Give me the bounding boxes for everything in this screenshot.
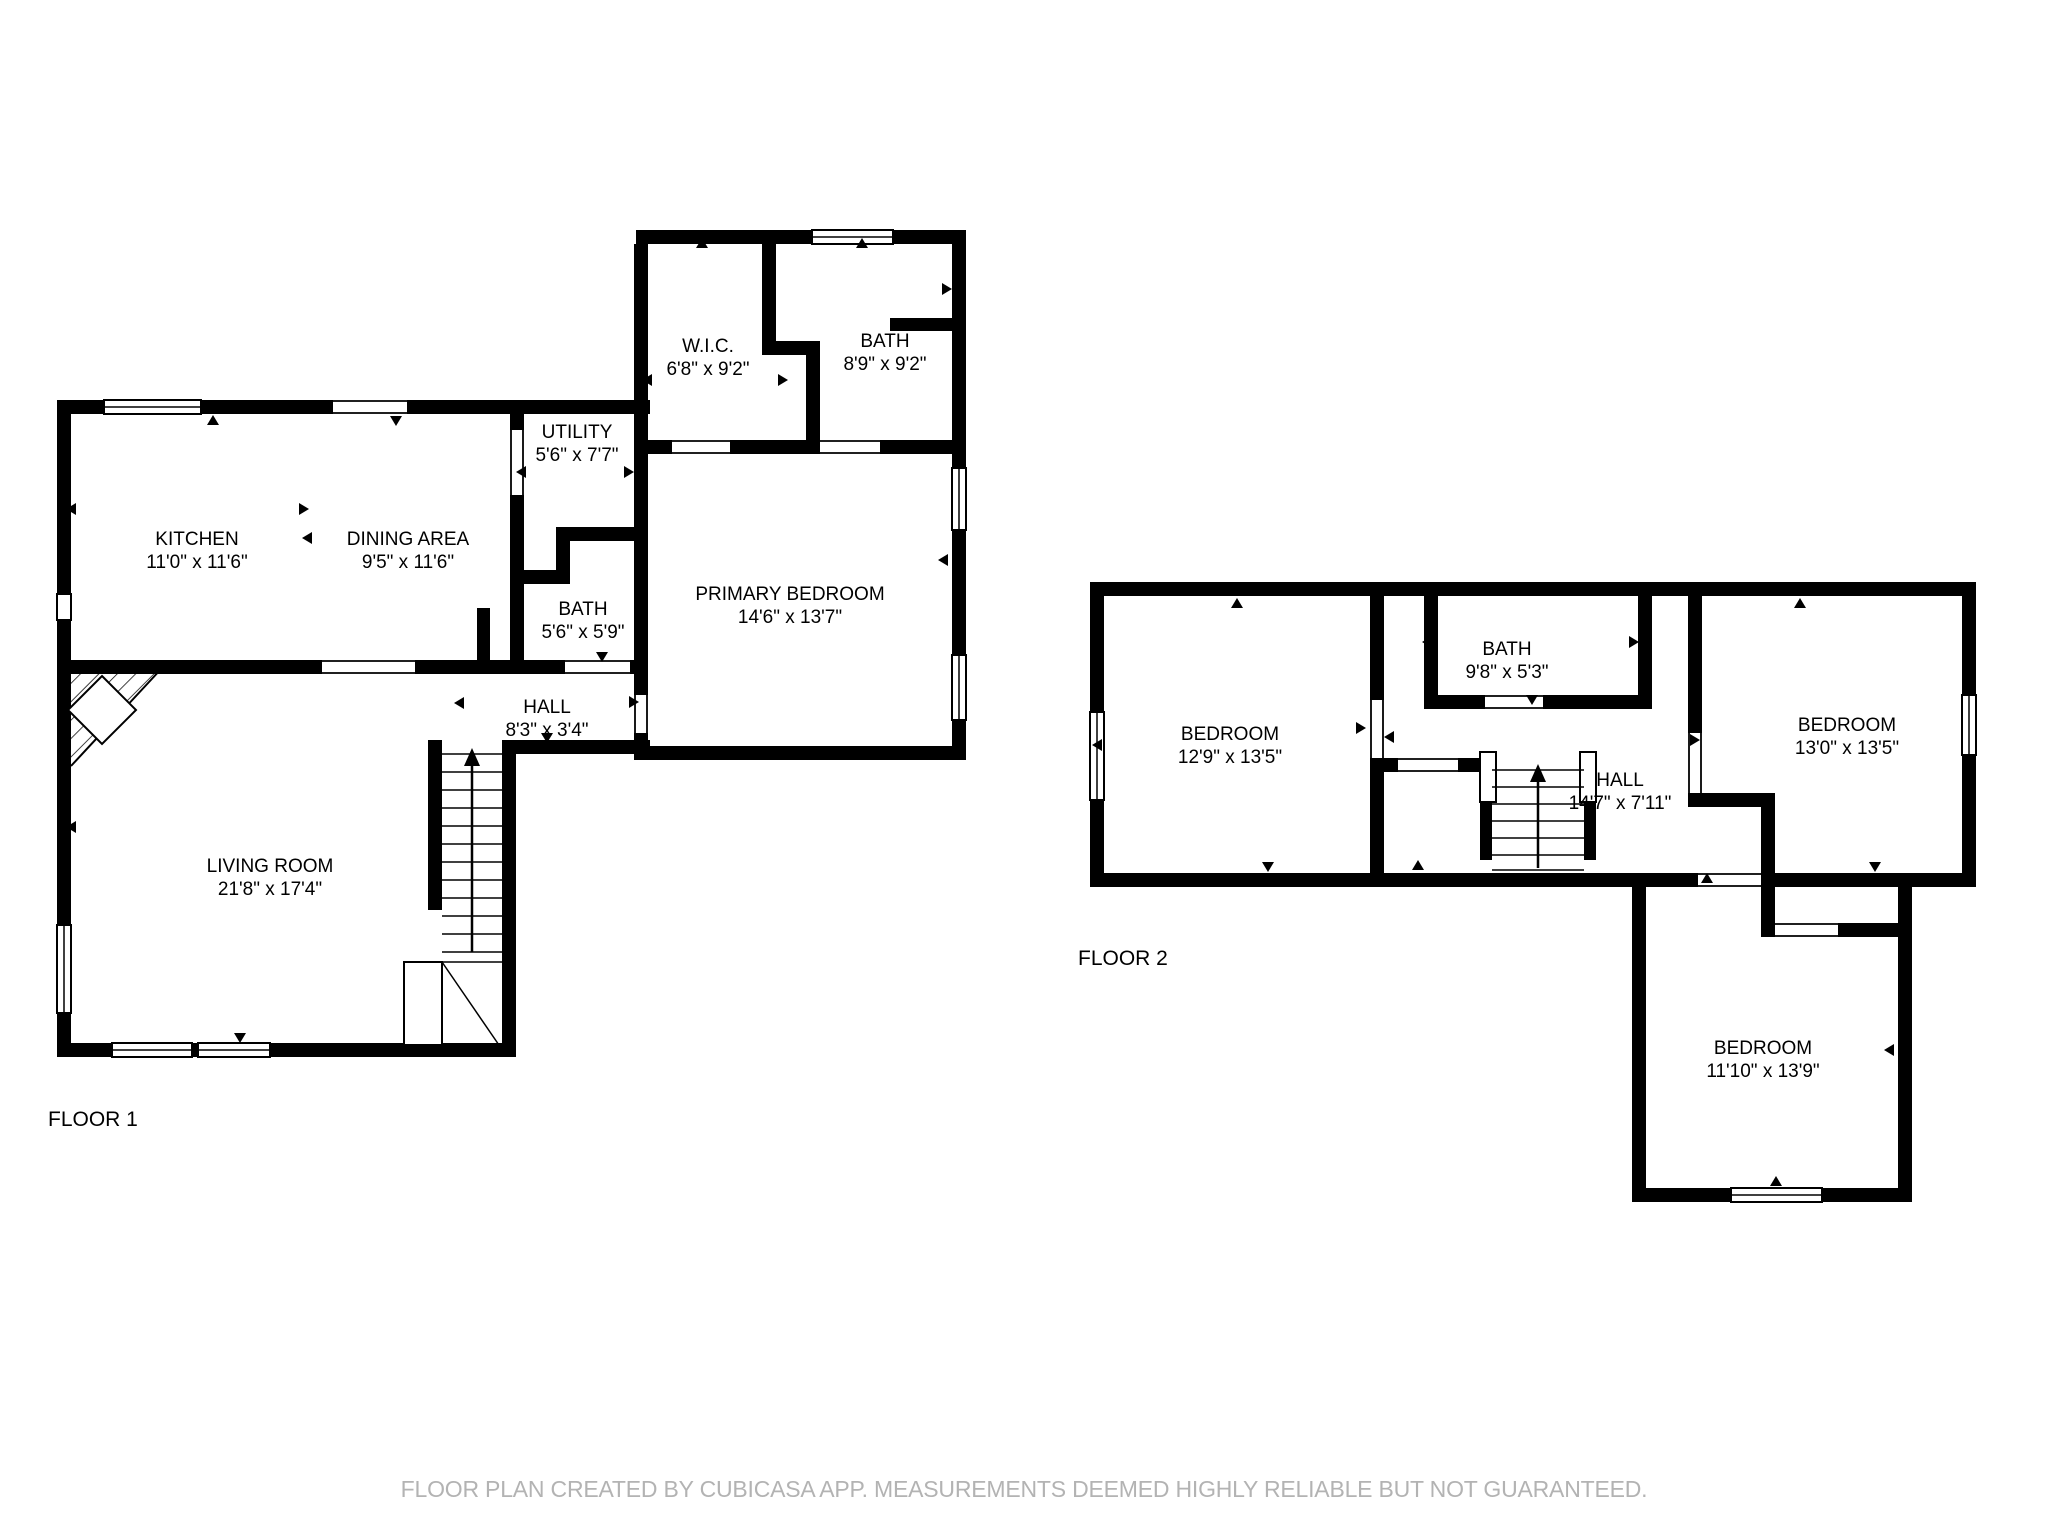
room-name: DINING AREA	[347, 528, 469, 551]
room-dims: 8'9" x 9'2"	[843, 353, 926, 376]
room-label-hall-floor2: HALL 14'7" x 7'11"	[1569, 769, 1672, 815]
room-dims: 5'6" x 5'9"	[541, 621, 624, 644]
room-name: HALL	[505, 696, 588, 719]
footer-disclaimer: FLOOR PLAN CREATED BY CUBICASA APP. MEAS…	[0, 1476, 2048, 1503]
room-dims: 21'8" x 17'4"	[207, 878, 334, 901]
room-label-utility: UTILITY 5'6" x 7'7"	[535, 421, 618, 467]
room-name: LIVING ROOM	[207, 855, 334, 878]
room-label-bedroom-bottom: BEDROOM 11'10" x 13'9"	[1706, 1037, 1819, 1083]
room-label-bath-floor1: BATH 5'6" x 5'9"	[541, 598, 624, 644]
room-name: UTILITY	[535, 421, 618, 444]
room-dims: 14'7" x 7'11"	[1569, 792, 1672, 815]
floor2-caption: FLOOR 2	[1078, 947, 1168, 971]
room-dims: 9'8" x 5'3"	[1465, 661, 1548, 684]
floor1-caption: FLOOR 1	[48, 1108, 138, 1132]
room-label-kitchen: KITCHEN 11'0" x 11'6"	[146, 528, 247, 574]
stairs-floor1	[404, 748, 502, 1048]
floor-plan-drawing	[0, 0, 2048, 1536]
room-label-bedroom-left: BEDROOM 12'9" x 13'5"	[1178, 723, 1282, 769]
room-name: BATH	[541, 598, 624, 621]
room-name: BATH	[1465, 638, 1548, 661]
room-dims: 11'0" x 11'6"	[146, 551, 247, 574]
room-name: BEDROOM	[1706, 1037, 1819, 1060]
room-name: PRIMARY BEDROOM	[695, 583, 884, 606]
room-dims: 13'0" x 13'5"	[1795, 737, 1899, 760]
room-name: HALL	[1569, 769, 1672, 792]
room-name: BEDROOM	[1178, 723, 1282, 746]
room-dims: 12'9" x 13'5"	[1178, 746, 1282, 769]
room-label-wic: W.I.C. 6'8" x 9'2"	[666, 335, 749, 381]
room-dims: 9'5" x 11'6"	[347, 551, 469, 574]
fireplace	[68, 668, 162, 766]
room-name: KITCHEN	[146, 528, 247, 551]
room-label-living-room: LIVING ROOM 21'8" x 17'4"	[207, 855, 334, 901]
room-label-bath-suite: BATH 8'9" x 9'2"	[843, 330, 926, 376]
room-label-bedroom-right: BEDROOM 13'0" x 13'5"	[1795, 714, 1899, 760]
room-label-dining-area: DINING AREA 9'5" x 11'6"	[347, 528, 469, 574]
room-name: W.I.C.	[666, 335, 749, 358]
room-dims: 11'10" x 13'9"	[1706, 1060, 1819, 1083]
room-label-hall-floor1: HALL 8'3" x 3'4"	[505, 696, 588, 742]
floor-plan-page: KITCHEN 11'0" x 11'6" DINING AREA 9'5" x…	[0, 0, 2048, 1536]
room-name: BATH	[843, 330, 926, 353]
room-label-bath-floor2: BATH 9'8" x 5'3"	[1465, 638, 1548, 684]
room-dims: 8'3" x 3'4"	[505, 719, 588, 742]
room-dims: 6'8" x 9'2"	[666, 358, 749, 381]
side-door	[57, 594, 71, 620]
windows-floor2	[1090, 695, 1976, 1202]
walls-floor1	[57, 230, 966, 1057]
room-dims: 14'6" x 13'7"	[695, 606, 884, 629]
room-label-primary-bedroom: PRIMARY BEDROOM 14'6" x 13'7"	[695, 583, 884, 629]
room-name: BEDROOM	[1795, 714, 1899, 737]
room-dims: 5'6" x 7'7"	[535, 444, 618, 467]
